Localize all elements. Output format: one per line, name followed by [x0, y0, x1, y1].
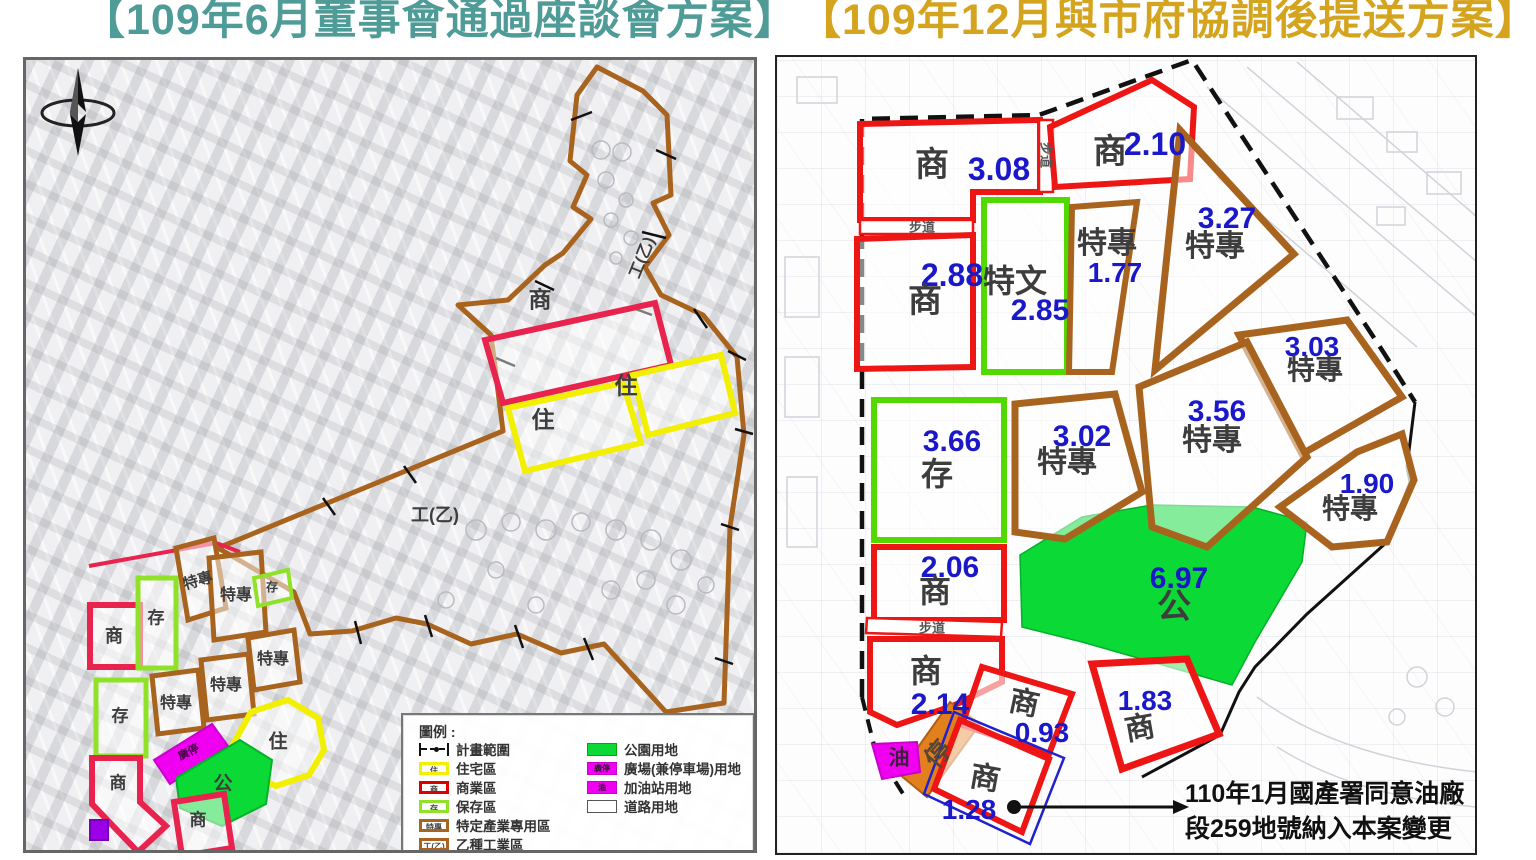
zone-label: 商 [105, 627, 123, 645]
zone-label: 存 [921, 458, 953, 490]
zone-value: 1.77 [1088, 259, 1143, 287]
zone-label: 公 [213, 775, 232, 794]
gas-station-label: 油 [889, 748, 910, 769]
page: 【109年6月董事會通過座談會方案】 【109年12月與市府協調後提送方案】 [0, 0, 1536, 860]
special-industry-swatch: 特專 [419, 819, 449, 832]
zone-label: 特專 [1287, 356, 1343, 384]
zone-value: 3.56 [1188, 397, 1246, 427]
residential-swatch: 住 [419, 762, 449, 775]
zone-gas-small [90, 820, 108, 840]
zone-label: 商 [919, 575, 951, 607]
zone-value: 2.10 [1124, 128, 1186, 160]
zone-label: 公 [1157, 590, 1191, 624]
annotation-line-2: 段259地號納入本案變更 [1185, 816, 1452, 844]
zone-label: 特專 [257, 652, 289, 668]
zone-value: 0.93 [1015, 719, 1070, 747]
zone-label: 特文 [983, 265, 1047, 297]
zone-label: 住 [615, 375, 638, 398]
zone-label: 商 [190, 812, 207, 829]
zone-label: 住 [268, 733, 287, 752]
zone-label: 特專 [160, 696, 192, 712]
zone-label: 存 [148, 610, 165, 627]
zone-label: 住 [532, 409, 555, 432]
zone-label: 商 [1093, 135, 1127, 169]
gas-station-swatch: 油 [587, 781, 617, 794]
legend-item-commercial: 商 商業區 [419, 779, 497, 795]
zone-value: 2.85 [1011, 296, 1069, 326]
park-swatch [587, 743, 617, 756]
industrial-b-swatch: 工(乙) [419, 838, 449, 851]
zone-label: 特專 [1037, 448, 1097, 478]
legend-item-plan-boundary: 計畫範圍 [419, 741, 510, 757]
walkway-label: 步道 [919, 622, 945, 635]
industrial-zone-label: 工(乙) [411, 506, 459, 524]
north-compass-icon [42, 68, 114, 156]
zone-value: 2.14 [911, 690, 969, 720]
zone-label: 特專 [1185, 232, 1245, 262]
zone-value: 3.08 [968, 153, 1030, 185]
zone-label: 商 [110, 775, 127, 792]
zone-label: 商 [529, 289, 552, 312]
commercial-swatch: 商 [419, 781, 449, 794]
zone-value: 1.28 [942, 796, 997, 824]
zone-label: 商 [910, 655, 942, 687]
zone-label: 特專 [1077, 229, 1137, 259]
legend-item-industrial-b: 工(乙) 乙種工業區 [419, 836, 524, 852]
zone-label: 特專 [1182, 426, 1242, 456]
annotation-line-1: 110年1月國產署同意油廠 [1185, 781, 1464, 809]
legend-title: 圖例 : [419, 722, 456, 742]
zone-value: 3.66 [923, 427, 981, 457]
preserve-swatch: 存 [419, 800, 449, 813]
legend-item-park: 公園用地 [587, 741, 678, 757]
left-map-panel: 商 住 住 工(乙) 工(乙) 商 存 特專 特專 存 特專 特專 特專 存 廣… [23, 57, 757, 853]
legend-item-special-industry: 特專 特定產業專用區 [419, 817, 551, 833]
walkway-label: 步道 [1040, 142, 1053, 168]
legend-item-residential: 住 住宅區 [419, 760, 497, 776]
road-swatch [587, 800, 617, 813]
legend-item-plaza: 廣停 廣場(兼停車場)用地 [587, 760, 741, 776]
zone-label: 商 [968, 762, 1003, 797]
right-map-title: 【109年12月與市府協調後提送方案】 [798, 0, 1536, 47]
zone-label: 存 [112, 708, 129, 725]
plan-boundary-swatch [419, 743, 449, 756]
legend-item-road: 道路用地 [587, 798, 678, 814]
zone-label: 特專 [210, 678, 242, 694]
zone-label: 商 [915, 148, 949, 182]
zone-label: 特專 [1322, 495, 1378, 523]
zone-label: 特專 [220, 588, 252, 604]
walkway-label: 步道 [909, 221, 935, 234]
zone-label: 商 [1123, 712, 1158, 747]
zone-label: 商 [908, 284, 942, 318]
right-map-panel: 商 3.08 商 2.10 2.88 商 特文 2.85 特專 1.77 3.2… [775, 55, 1477, 855]
left-map-title: 【109年6月董事會通過座談會方案】 [82, 0, 798, 47]
zone-label: 存 [266, 581, 278, 593]
plaza-swatch: 廣停 [587, 762, 617, 775]
legend-item-preserve: 存 保存區 [419, 798, 497, 814]
legend: 圖例 : 計畫範圍 住 住宅區 商 商業區 存 保存區 特專 特定產業專用區 [401, 713, 755, 853]
legend-item-gas-station: 油 加油站用地 [587, 779, 692, 795]
